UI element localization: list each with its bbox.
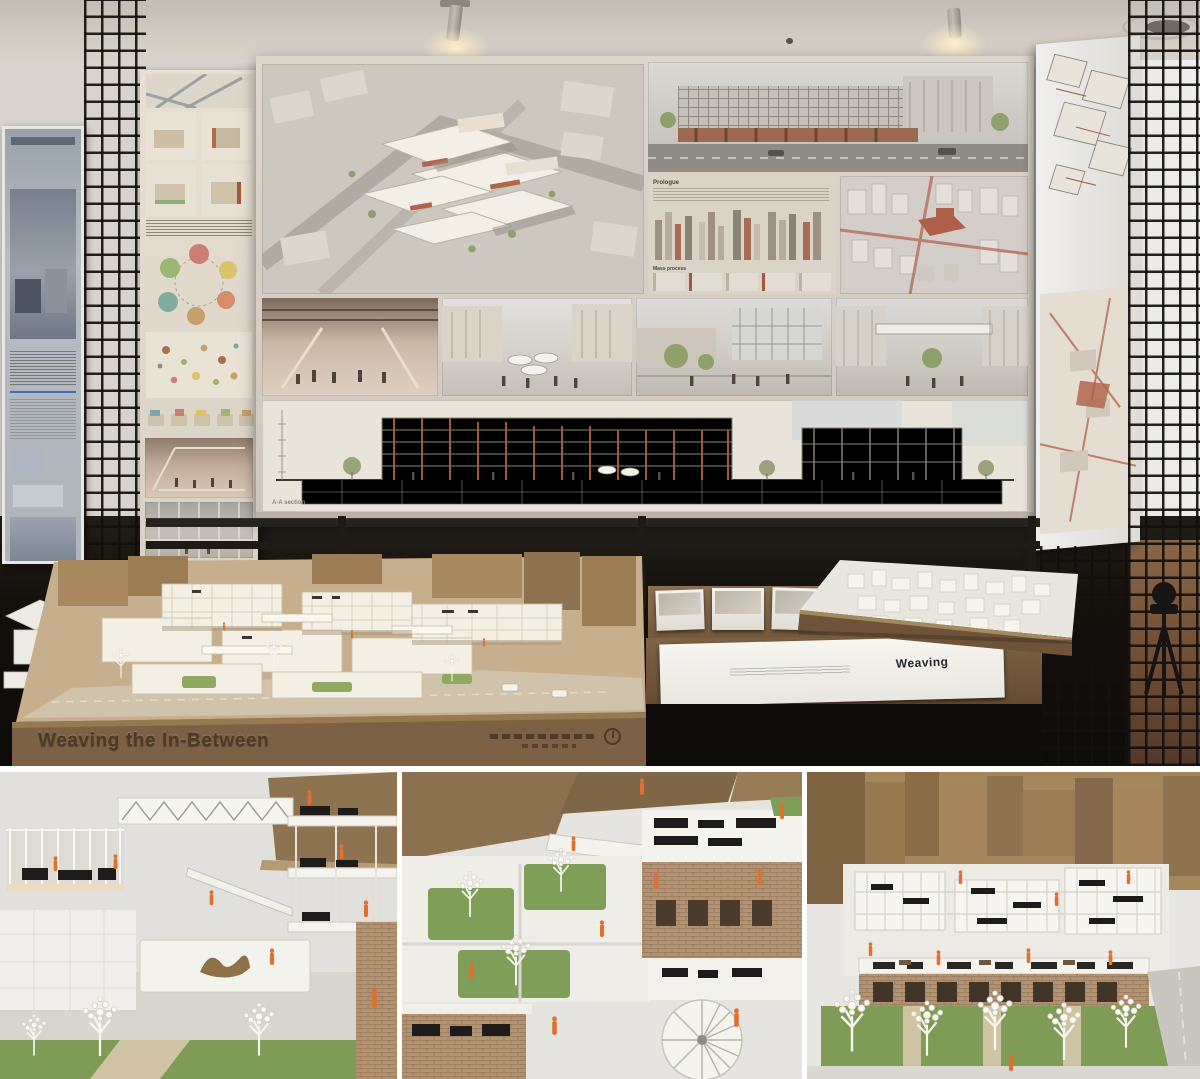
- model-figure: [482, 638, 486, 647]
- exhibition-photo-collage: Weaving the In-Between: [0, 0, 1200, 1079]
- model-tree: [1039, 1000, 1089, 1060]
- model-figure: [222, 622, 226, 631]
- model-figure: [732, 1008, 741, 1028]
- model-figure: [306, 790, 313, 806]
- model-figure: [638, 778, 646, 796]
- model-figure: [598, 920, 606, 938]
- render-arcade-interior: [262, 298, 438, 396]
- model-tree: [16, 1012, 52, 1056]
- plaque-small-text: [490, 734, 594, 739]
- model-figure: [1053, 892, 1060, 907]
- model-figure: [52, 856, 59, 872]
- model-tree: [969, 988, 1021, 1050]
- model-tree: [236, 1000, 282, 1056]
- model-figure: [468, 962, 476, 980]
- tripod-camera: [1136, 572, 1192, 702]
- left-diagram-board: [140, 70, 258, 562]
- model-tree: [450, 868, 490, 918]
- prologue-label: Prologue: [653, 180, 679, 186]
- context-axon-render: [840, 176, 1028, 294]
- model-figure: [756, 868, 764, 886]
- main-presentation-board: Weaving the In-Between: [256, 56, 1034, 518]
- axon-diagram-card: [146, 164, 196, 216]
- model-plaque-text: Weaving the In-Between: [38, 730, 269, 752]
- render-plaza: [636, 298, 832, 396]
- leaflet-card: [655, 589, 704, 631]
- model-figure: [268, 948, 276, 966]
- prologue-panel: Prologue Mass process: [648, 176, 836, 294]
- model-figure: [957, 870, 964, 885]
- massing-axon-row: [144, 404, 256, 434]
- main-model: Weaving the In-Between: [12, 526, 652, 766]
- model-tree: [1103, 992, 1149, 1048]
- model-figure: [1125, 870, 1132, 885]
- model-figure: [362, 900, 370, 918]
- model-figure: [570, 836, 577, 852]
- model-figure: [652, 872, 660, 890]
- table-cloth-front: [646, 704, 1042, 766]
- collage-bars: [653, 206, 831, 264]
- render-market-courtyard: [442, 298, 632, 396]
- section-label: A-A section: [272, 500, 305, 506]
- model-tree: [440, 652, 464, 682]
- side-poster-left: [2, 126, 84, 564]
- model-figure: [1025, 948, 1032, 964]
- model-figure: [1107, 950, 1114, 966]
- model-tree: [542, 846, 580, 892]
- model-figure: [778, 802, 786, 820]
- model-figure: [550, 1016, 559, 1036]
- model-figure: [867, 942, 874, 957]
- map-figure: [146, 74, 252, 108]
- mass-process-label: Mass process: [653, 266, 686, 272]
- model-figure: [112, 854, 119, 870]
- ceiling-vent-dot: [786, 38, 793, 44]
- long-section-drawing: A-A section: [262, 400, 1028, 512]
- model-tree: [262, 638, 286, 668]
- interior-render-atrium: [145, 438, 253, 498]
- ceiling: [0, 0, 1200, 64]
- model-figure: [338, 844, 345, 860]
- mass-process-thumbs: [653, 273, 831, 291]
- program-bubble-diagram: [144, 242, 254, 330]
- model-closeup-left: [0, 772, 397, 1079]
- white-site-model: [788, 552, 1088, 672]
- model-closeup-middle: [402, 772, 802, 1079]
- axon-diagram-card: [202, 164, 252, 216]
- model-figure: [370, 988, 379, 1009]
- model-figure: [1007, 1054, 1015, 1072]
- site-bubble-plan: [146, 332, 252, 398]
- model-tree: [74, 994, 126, 1056]
- axon-diagram-card: [202, 112, 252, 160]
- right-plan-board: [1036, 35, 1140, 550]
- main-photo: Weaving the In-Between: [0, 0, 1200, 766]
- model-tree: [825, 986, 879, 1052]
- model-figure: [935, 950, 942, 966]
- plaque-small-text: [522, 744, 576, 748]
- model-overview-right: [807, 772, 1200, 1079]
- model-figure: [350, 630, 354, 639]
- street-render: [648, 62, 1028, 172]
- model-figure: [208, 890, 215, 906]
- hero-axon-render: [262, 64, 644, 294]
- model-tree: [108, 646, 134, 678]
- render-bridge-street: [836, 298, 1028, 396]
- right-board-siteplan: [1040, 286, 1136, 534]
- model-tree: [903, 998, 951, 1056]
- model-tree: [494, 932, 538, 986]
- axon-diagram-card: [146, 112, 196, 160]
- north-arrow-icon: [604, 728, 621, 745]
- leaflet-card: [712, 588, 764, 630]
